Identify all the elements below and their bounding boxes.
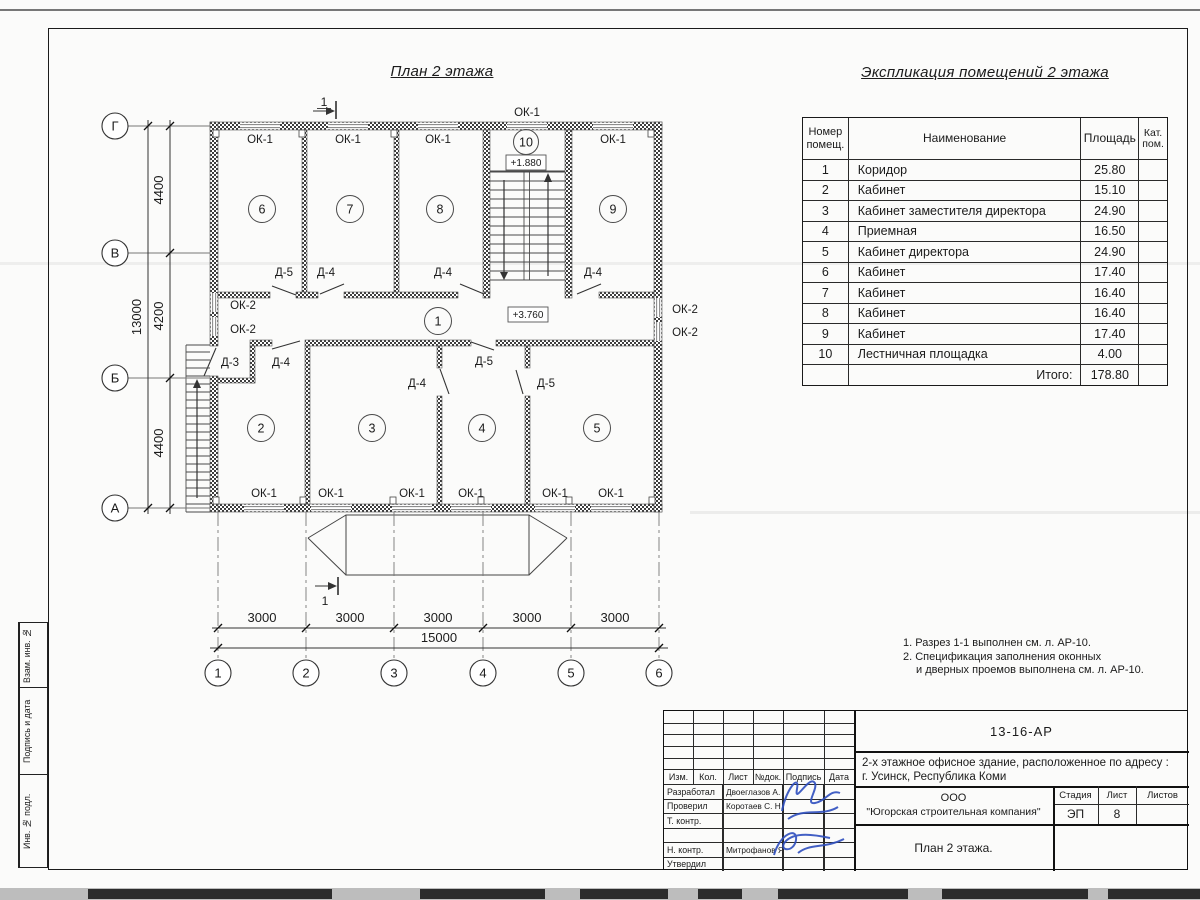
role-cell: Разработал — [664, 785, 723, 799]
room-number-cell: 4 — [803, 222, 849, 242]
stage-value: ЭП — [1053, 804, 1098, 824]
room-category-cell — [1139, 242, 1167, 262]
table-row: 4 Приемная 16.50 — [803, 221, 1167, 242]
table-row: 7 Кабинет 16.40 — [803, 282, 1167, 303]
room-number-cell: 9 — [803, 324, 849, 344]
window-label: ОК-1 — [425, 134, 451, 146]
room-name-cell: Приемная — [849, 222, 1082, 242]
dim-label: 4400 — [151, 176, 166, 205]
room-name-cell: Кабинет — [849, 304, 1082, 324]
opening-tags: ОК-1 ОК-1 ОК-1 ОК-1 ОК-1 ОК-1 ОК-1 ОК-1 … — [221, 107, 698, 500]
room-category-cell — [1139, 304, 1167, 324]
dim-label: 3000 — [601, 610, 630, 625]
room-numbers: 1 2 3 4 5 6 7 8 9 10 — [258, 136, 617, 436]
room-number-cell: 6 — [803, 263, 849, 283]
room-category-cell — [1139, 201, 1167, 221]
column-header-name: Наименование — [849, 118, 1082, 159]
col-kol: Кол. — [693, 769, 723, 784]
door-label: Д-4 — [272, 357, 291, 369]
room-number: 10 — [519, 136, 533, 150]
table-row: 2 Кабинет 15.10 — [803, 180, 1167, 201]
room-category-cell — [1139, 222, 1167, 242]
project-description-line1: 2-х этажное офисное здание, расположенно… — [862, 756, 1189, 770]
table-row: 10 Лестничная площадка 4.00 — [803, 344, 1167, 365]
table-header-row: Номер помещ. Наименование Площадь Кат. п… — [803, 118, 1167, 159]
dim-label: 4200 — [151, 302, 166, 331]
door-label: Д-5 — [537, 378, 555, 390]
margin-label: Подпись и дата — [19, 688, 34, 774]
table-row: 9 Кабинет 17.40 — [803, 323, 1167, 344]
table-row: 6 Кабинет 17.40 — [803, 262, 1167, 283]
room-area-cell: 24.90 — [1081, 242, 1139, 262]
door-label: Д-4 — [317, 267, 336, 279]
axis-bubble-label: 5 — [567, 666, 574, 681]
window-label: ОК-1 — [335, 134, 361, 146]
room-name-cell: Кабинет — [849, 263, 1082, 283]
window-label: ОК-1 — [251, 488, 277, 500]
plan-title: План 2 этажа — [337, 63, 547, 80]
signature-scribble — [764, 823, 859, 869]
room-number-cell: 5 — [803, 242, 849, 262]
room-category-cell — [1139, 160, 1167, 180]
window-label: ОК-1 — [399, 488, 425, 500]
axis-bubbles — [102, 113, 672, 686]
window-label: ОК-1 — [247, 134, 273, 146]
room-number: 9 — [610, 203, 617, 217]
total-empty-cell — [803, 365, 849, 385]
room-category-cell — [1139, 181, 1167, 201]
room-number: 3 — [369, 422, 376, 436]
axis-bubble-label: 4 — [479, 666, 486, 681]
total-area-cell: 178.80 — [1081, 365, 1139, 385]
room-number-cell: 8 — [803, 304, 849, 324]
axis-bubble-label: 6 — [655, 666, 662, 681]
column-header-area: Площадь — [1081, 118, 1139, 159]
axis-labels: Г В Б А 1 2 3 4 5 6 — [111, 119, 663, 681]
room-number-cell: 1 — [803, 160, 849, 180]
room-area-cell: 16.50 — [1081, 222, 1139, 242]
drawing-name: План 2 этажа. — [854, 824, 1053, 871]
room-name-cell: Кабинет заместителя директора — [849, 201, 1082, 221]
axis-bubble-label: 3 — [390, 666, 397, 681]
drawing-sheet: { "sheet": { "plan_title": "План 2 этажа… — [0, 0, 1200, 900]
door-label: Д-4 — [584, 267, 603, 279]
window-label: ОК-1 — [318, 488, 344, 500]
level-mark: +1.880 — [511, 158, 542, 169]
room-name-cell: Лестничная площадка — [849, 345, 1082, 365]
room-category-cell — [1139, 283, 1167, 303]
door-label: Д-4 — [434, 267, 453, 279]
stair-up-arrow — [193, 379, 201, 388]
note-line: 1. Разрез 1-1 выполнен см. л. АР-10. — [903, 637, 1193, 651]
room-name-cell: Кабинет — [849, 181, 1082, 201]
room-area-cell: 4.00 — [1081, 345, 1139, 365]
level-mark: +3.760 — [513, 310, 544, 321]
role-cell: Т. контр. — [664, 814, 723, 828]
role-cell — [664, 829, 723, 843]
room-number-cell: 3 — [803, 201, 849, 221]
note-line: 2. Спецификация заполнения оконных — [903, 651, 1193, 665]
project-description-line2: г. Усинск, Республика Коми — [862, 770, 1189, 784]
role-cell: Утвердил — [664, 858, 723, 872]
role-cell: Н. контр. — [664, 843, 723, 857]
window-label: ОК-1 — [598, 488, 624, 500]
axis-bubble-label: Б — [111, 371, 120, 386]
column-header-number: Номер помещ. — [803, 118, 849, 159]
axis-bubble-label: 2 — [302, 666, 309, 681]
window-label: ОК-1 — [514, 107, 540, 119]
sheet-number: 8 — [1098, 804, 1136, 824]
level-marks: +1.880 +3.760 — [506, 155, 548, 322]
table-row: 3 Кабинет заместителя директора 24.90 — [803, 200, 1167, 221]
axis-bubble-label: 1 — [214, 666, 221, 681]
margin-box-inv: Инв. № подл. — [18, 774, 48, 868]
dim-label: 3000 — [424, 610, 453, 625]
room-number: 8 — [437, 203, 444, 217]
room-number-cell: 10 — [803, 345, 849, 365]
room-category-cell — [1139, 345, 1167, 365]
col-list: Лист — [723, 769, 753, 784]
table-row: 1 Коридор 25.80 — [803, 159, 1167, 180]
organization-line1: ООО — [854, 791, 1053, 805]
stair-down-arrow — [500, 272, 508, 280]
room-number: 7 — [347, 203, 354, 217]
signature-scribble — [774, 767, 854, 829]
section-mark-number: 1 — [321, 95, 328, 109]
door-label: Д-4 — [408, 378, 427, 390]
dim-label: 3000 — [248, 610, 277, 625]
room-area-cell: 17.40 — [1081, 263, 1139, 283]
axis-bubble-label: В — [111, 246, 120, 261]
section-arrow — [328, 582, 337, 590]
dim-label: 15000 — [421, 630, 457, 645]
door-label: Д-5 — [275, 267, 293, 279]
room-number: 2 — [258, 422, 265, 436]
entrance-canopy — [308, 515, 567, 575]
room-area-cell: 16.40 — [1081, 304, 1139, 324]
room-name-cell: Кабинет — [849, 283, 1082, 303]
table-row: 8 Кабинет 16.40 — [803, 303, 1167, 324]
room-category-cell — [1139, 324, 1167, 344]
dim-label: 4400 — [151, 429, 166, 458]
window-label: ОК-2 — [230, 324, 256, 336]
margin-label: Взам. инв. № — [19, 623, 34, 687]
room-area-cell: 15.10 — [1081, 181, 1139, 201]
sheet-header: Лист — [1098, 788, 1136, 803]
total-category-cell — [1139, 365, 1167, 385]
column-header-category: Кат. пом. — [1139, 118, 1167, 159]
room-name-cell: Кабинет директора — [849, 242, 1082, 262]
room-area-cell: 25.80 — [1081, 160, 1139, 180]
window-label: ОК-2 — [672, 327, 698, 339]
staircase — [490, 171, 565, 280]
total-label-cell: Итого: — [849, 365, 1082, 385]
room-number-cell: 7 — [803, 283, 849, 303]
room-category-cell — [1139, 263, 1167, 283]
notes: 1. Разрез 1-1 выполнен см. л. АР-10. 2. … — [903, 637, 1193, 678]
explication-title: Экспликация помещений 2 этажа — [835, 64, 1135, 81]
margin-box-podpis: Подпись и дата — [18, 687, 48, 775]
margin-box-vzam: Взам. инв. № — [18, 622, 48, 688]
axis-lines — [128, 126, 659, 660]
explication-table: Номер помещ. Наименование Площадь Кат. п… — [802, 117, 1168, 386]
doc-code: 13-16-АР — [854, 717, 1189, 745]
room-area-cell: 16.40 — [1081, 283, 1139, 303]
room-number: 5 — [594, 422, 601, 436]
window-label: ОК-2 — [672, 304, 698, 316]
section-marks: 1 1 — [313, 95, 338, 608]
stage-header: Стадия — [1053, 788, 1098, 803]
dimension-lines — [144, 120, 668, 652]
dim-label: 13000 — [129, 299, 144, 335]
dimension-ticks — [144, 122, 663, 652]
door-label: Д-5 — [475, 356, 493, 368]
room-number: 1 — [435, 315, 442, 329]
room-area-cell: 24.90 — [1081, 201, 1139, 221]
window-label: ОК-1 — [542, 488, 568, 500]
dim-label: 3000 — [336, 610, 365, 625]
note-line: и дверных проемов выполнена см. л. АР-10… — [903, 664, 1193, 678]
margin-label: Инв. № подл. — [19, 775, 34, 867]
room-area-cell: 17.40 — [1081, 324, 1139, 344]
section-mark-number: 1 — [322, 594, 329, 608]
room-number-cell: 2 — [803, 181, 849, 201]
col-izm: Изм. — [664, 769, 693, 784]
dim-label: 3000 — [513, 610, 542, 625]
title-block: Изм. Кол. Лист №док. Подпись Дата Разраб… — [663, 710, 1188, 870]
margin-strip: Взам. инв. № Подпись и дата Инв. № подл. — [18, 622, 48, 868]
axis-bubble-label: Г — [111, 119, 118, 134]
stair-up-arrow — [544, 173, 552, 182]
room-number: 6 — [259, 203, 266, 217]
axis-bubble-label: А — [111, 501, 120, 516]
door-label: Д-3 — [221, 357, 239, 369]
window-label: ОК-1 — [458, 488, 484, 500]
room-name-cell: Кабинет — [849, 324, 1082, 344]
table-total-row: Итого: 178.80 — [803, 364, 1167, 385]
role-cell: Проверил — [664, 800, 723, 814]
room-name-cell: Коридор — [849, 160, 1082, 180]
window-label: ОК-1 — [600, 134, 626, 146]
table-row: 5 Кабинет директора 24.90 — [803, 241, 1167, 262]
sheets-header: Листов — [1136, 788, 1189, 803]
organization-line2: "Югорская строительная компания" — [854, 805, 1053, 819]
room-number: 4 — [479, 422, 486, 436]
window-label: ОК-2 — [230, 300, 256, 312]
